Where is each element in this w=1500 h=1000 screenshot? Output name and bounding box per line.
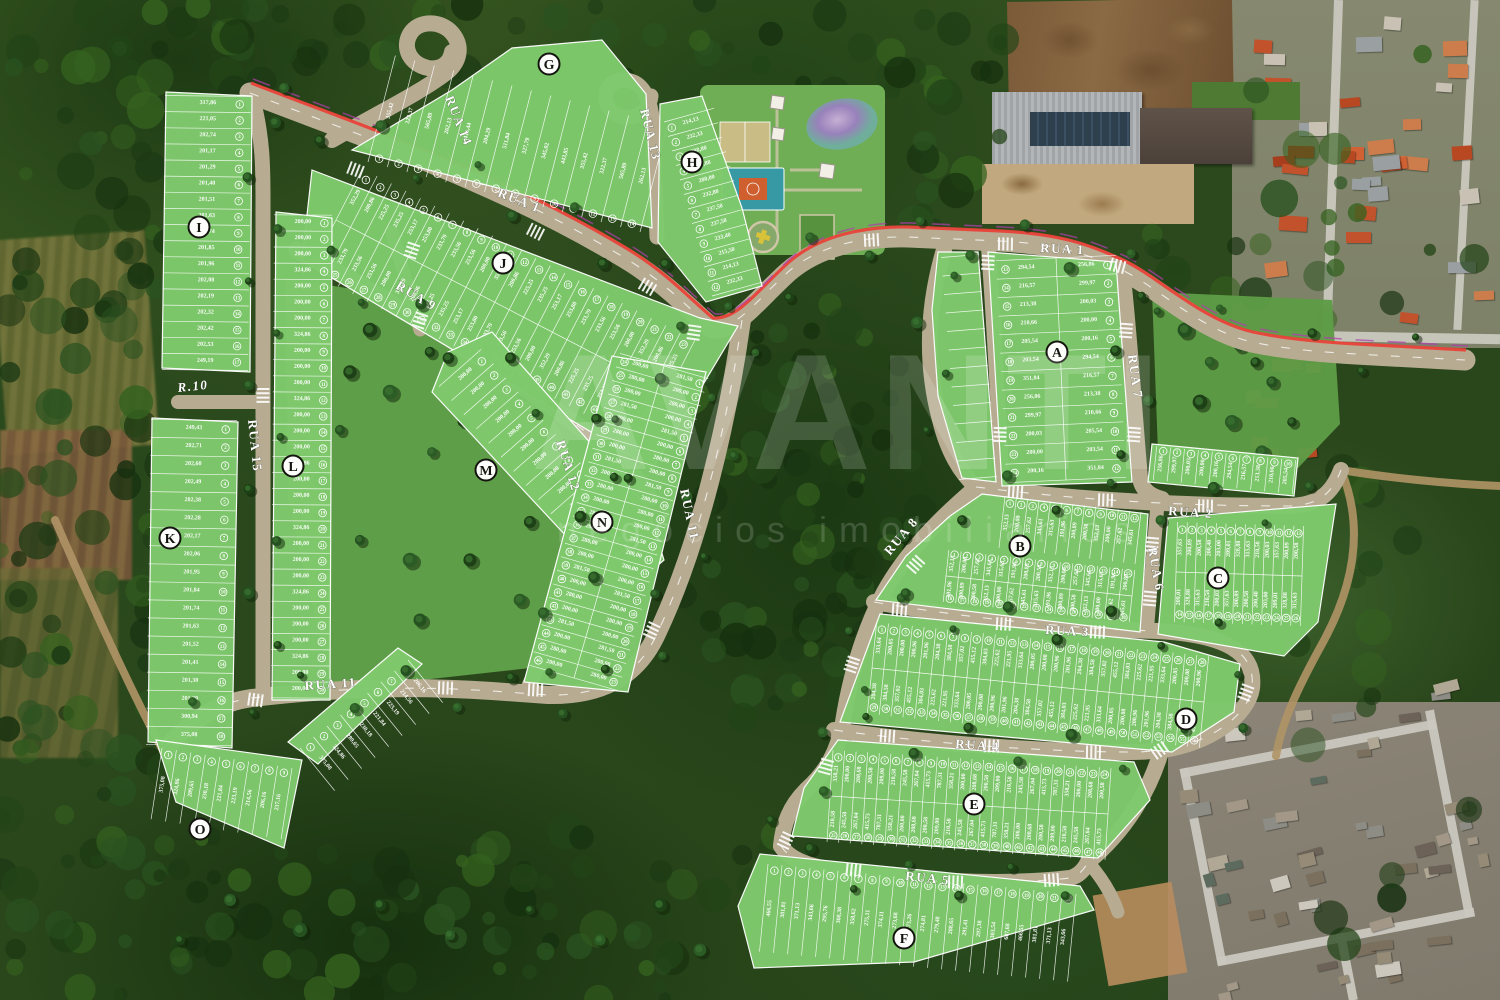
tree-canopy-blob: [1291, 727, 1326, 762]
tree-highlight: [428, 448, 433, 453]
tree-canopy-blob: [63, 695, 98, 730]
lot-number: 25: [1059, 609, 1064, 614]
tree-canopy-blob: [755, 534, 770, 549]
tree-canopy-blob: [786, 451, 821, 486]
lot-number: 14: [235, 313, 240, 318]
lot-area-label: 200,58: [1099, 782, 1106, 799]
tree-canopy-blob: [642, 23, 666, 47]
block-letter: H: [687, 156, 698, 171]
tree-highlight: [345, 367, 352, 374]
lot-area-label: 200,00: [1026, 449, 1043, 456]
tree-canopy-blob: [52, 646, 71, 665]
tree-canopy-blob: [493, 962, 506, 975]
lot-area-label: 317,86: [200, 100, 217, 106]
block-letter: L: [288, 460, 297, 475]
tree-canopy-blob: [0, 716, 20, 742]
tree-canopy-blob: [119, 385, 153, 419]
tree-highlight: [226, 896, 233, 903]
tree-canopy-blob: [13, 275, 28, 290]
lot-number: 43: [1038, 723, 1043, 728]
lot-number: 18: [1033, 769, 1038, 774]
tree-canopy-blob: [1303, 261, 1333, 291]
lot-number: 15: [642, 572, 647, 577]
tree-canopy-blob: [732, 845, 752, 865]
lot-number: 19: [1044, 770, 1049, 775]
tree-highlight: [1309, 329, 1314, 334]
tree-highlight: [559, 710, 565, 716]
tree-canopy-blob: [992, 129, 1007, 144]
tree-canopy-blob: [914, 9, 936, 31]
lot-area-label: 200,00: [294, 380, 311, 386]
tree-canopy-blob: [55, 805, 74, 824]
lot-number: 42: [1026, 722, 1031, 727]
lot-area-label: 201,95: [183, 569, 200, 575]
lot-number: 46: [536, 659, 541, 664]
lot-number: 16: [235, 345, 240, 350]
tree-canopy-blob: [494, 919, 524, 949]
tree-highlight: [943, 370, 948, 375]
lot-number: 28: [1200, 661, 1205, 666]
lot-number: 41: [1014, 721, 1019, 726]
lot-number: 15: [1126, 572, 1131, 577]
lot-area-label: 200,00: [960, 773, 967, 790]
tree-highlight: [1227, 417, 1235, 425]
lot-number: 4: [408, 201, 411, 206]
lot-number: 11: [321, 383, 326, 388]
tree-highlight: [336, 426, 342, 432]
subdivision-plan-overlay: 355,421322,372565,893262,134418,445204,2…: [0, 0, 1500, 1000]
lot-number: 22: [1011, 435, 1016, 440]
tree-highlight: [1257, 447, 1264, 454]
lot-number: 32: [912, 839, 917, 844]
lot-area-label: 200,00: [899, 815, 906, 832]
tree-highlight: [413, 175, 417, 179]
tree-canopy-blob: [100, 305, 138, 343]
tree-highlight: [1062, 892, 1067, 897]
lot-area-label: 200,00: [294, 300, 311, 306]
lot-number: 25: [1284, 617, 1289, 622]
lot-area-label: 415,73: [865, 813, 872, 830]
basketball-key: [739, 178, 767, 200]
lot-number: 21: [1010, 416, 1015, 421]
lot-area-label: 200,89: [1284, 542, 1291, 559]
lot-number: 15: [998, 767, 1003, 772]
tree-highlight: [950, 626, 954, 630]
lot-number: 12: [654, 531, 659, 536]
tree-canopy-blob: [142, 0, 168, 25]
tree-highlight: [708, 394, 712, 398]
lot-number: 15: [1005, 305, 1010, 310]
tree-canopy-blob: [9, 589, 27, 607]
lot-area-label: 607,68: [1004, 923, 1012, 940]
tree-canopy-blob: [80, 426, 111, 457]
tree-canopy-blob: [1243, 77, 1269, 103]
lot-area-label: 202,06: [184, 551, 201, 557]
lot-number: 14: [1034, 644, 1039, 649]
tree-canopy-blob: [693, 0, 716, 13]
tree-canopy-blob: [1324, 240, 1340, 256]
tree-highlight: [820, 787, 825, 792]
lot-area-label: 245,58: [902, 769, 909, 786]
lot-number: 10: [493, 246, 498, 251]
tree-canopy-blob: [1168, 263, 1183, 278]
tree-highlight: [245, 381, 251, 387]
lot-area-label: 201,30: [182, 678, 199, 684]
tree-canopy-blob: [588, 0, 604, 14]
tree-canopy-blob: [571, 855, 594, 878]
tree-highlight: [533, 410, 538, 415]
tree-canopy-blob: [451, 0, 483, 21]
lot-number: 34: [935, 841, 940, 846]
tree-highlight: [1240, 724, 1245, 729]
tree-highlight: [1127, 250, 1132, 255]
tree-canopy-blob: [689, 30, 710, 51]
lot-area-label: 267,04: [914, 770, 921, 787]
tree-highlight: [298, 672, 302, 676]
lot-number: 28: [319, 657, 324, 662]
tree-highlight: [1154, 308, 1158, 312]
tree-canopy-blob: [219, 19, 254, 54]
lot-number: 25: [320, 608, 325, 613]
tree-canopy-blob: [154, 835, 174, 855]
lot-area-label: 205,54: [1085, 428, 1102, 435]
tree-highlight: [851, 886, 855, 890]
lot-area-label: 208,68: [911, 816, 918, 833]
lot-number: 22: [615, 667, 620, 672]
tree-highlight: [1268, 378, 1274, 384]
tree-canopy-blob: [61, 854, 75, 868]
lot-number: 42: [578, 401, 583, 406]
tree-canopy-blob: [696, 878, 731, 913]
block-letter: E: [969, 798, 978, 813]
lot-number: 17: [1206, 614, 1211, 619]
lot-number: 21: [1052, 897, 1057, 902]
lot-number: 24: [1152, 656, 1157, 661]
lot-area-label: 375,08: [158, 776, 166, 793]
lot-area-label: 343,66: [1060, 928, 1068, 945]
lot-number: 18: [1081, 649, 1086, 654]
tree-canopy-blob: [872, 429, 894, 451]
tree-canopy-blob: [91, 854, 104, 867]
lot-number: 17: [635, 599, 640, 604]
tree-canopy-blob: [854, 547, 884, 577]
tree-highlight: [328, 247, 333, 252]
lot-area-label: 787,31: [937, 772, 944, 789]
lot-area-label: 267,04: [853, 812, 860, 829]
tree-highlight: [539, 609, 545, 615]
tree-canopy-blob: [136, 577, 152, 593]
lot-area-label: 201,41: [182, 660, 199, 666]
lot-number: 19: [1226, 615, 1231, 620]
tree-highlight: [611, 474, 616, 479]
tree-canopy-blob: [317, 844, 337, 864]
tree-canopy-blob: [19, 167, 32, 180]
tree-highlight: [402, 667, 408, 673]
lot-area-label: 209,00: [1050, 825, 1057, 842]
lot-area-label: 221,05: [199, 116, 216, 122]
lot-number: 16: [321, 463, 326, 468]
tree-canopy-blob: [118, 935, 132, 949]
tree-highlight: [862, 687, 866, 691]
lot-area-label: 200,00: [1076, 781, 1083, 798]
tree-highlight: [277, 434, 281, 438]
tree-canopy-blob: [6, 959, 23, 976]
tree-canopy-blob: [797, 483, 820, 506]
lot-number: 15: [321, 447, 326, 452]
lot-area-label: 200,00: [293, 557, 310, 563]
tree-canopy-blob: [1348, 203, 1367, 222]
lot-area-label: 328,88: [1185, 589, 1192, 606]
lot-number: 14: [1177, 613, 1182, 618]
lot-number: 31: [595, 456, 600, 461]
tree-highlight: [924, 427, 928, 431]
lot-number: 40: [549, 386, 554, 391]
lot-number: 25: [831, 834, 836, 839]
tree-canopy-blob: [207, 870, 221, 884]
tree-highlight: [677, 323, 682, 328]
lot-area-label: 357,63: [1177, 539, 1184, 556]
lot-area-label: 202,28: [184, 515, 201, 521]
tree-highlight: [916, 218, 921, 223]
tree-highlight: [1053, 507, 1058, 512]
tree-canopy-blob: [1460, 244, 1489, 273]
tree-canopy-blob: [1379, 862, 1405, 888]
lot-number: 25: [1164, 658, 1169, 663]
lot-number: 25: [333, 274, 338, 279]
lot-number: 10: [705, 257, 710, 262]
tree-highlight: [377, 122, 383, 128]
block-A: 256,86294,54113299,97216,57214200,03213,…: [988, 252, 1132, 486]
tree-canopy-blob: [11, 551, 27, 567]
tree-canopy-blob: [898, 449, 922, 473]
tree-canopy-blob: [831, 551, 852, 572]
lot-number: 19: [623, 313, 628, 318]
lot-number: 10: [898, 882, 903, 887]
lot-number: 10: [1064, 565, 1069, 570]
masterplan-aerial-map: 355,421322,372565,893262,134418,445204,2…: [0, 0, 1500, 1000]
lot-number: 16: [639, 586, 644, 591]
lot-area-label: 200,00: [294, 283, 311, 289]
lot-number: 13: [650, 545, 655, 550]
lot-area-label: 299,97: [1025, 412, 1042, 419]
lot-area-label: 357,63: [1224, 590, 1231, 607]
tree-highlight: [785, 294, 790, 299]
tree-highlight: [965, 724, 971, 730]
lot-number: 14: [1113, 571, 1118, 576]
lot-number: 33: [587, 483, 592, 488]
lot-area-label: 216,57: [1083, 373, 1100, 380]
lot-number: 13: [1296, 532, 1301, 537]
tree-canopy-blob: [114, 241, 133, 260]
lot-number: 19: [627, 626, 632, 631]
tree-canopy-blob: [125, 879, 146, 900]
lot-number: 10: [552, 202, 557, 207]
tree-canopy-blob: [278, 862, 312, 896]
tree-highlight: [1306, 483, 1311, 488]
tree-canopy-blob: [654, 979, 668, 993]
block-marker-I: I: [189, 217, 210, 238]
lot-area-label: 200,00: [295, 235, 312, 241]
tree-canopy-blob: [34, 59, 48, 73]
tree-highlight: [656, 375, 662, 381]
lot-number: 21: [1068, 771, 1073, 776]
tree-canopy-blob: [543, 4, 569, 30]
lot-area-label: 202,32: [197, 310, 214, 316]
tree-highlight: [1358, 368, 1363, 373]
tree-canopy-blob: [109, 468, 141, 500]
lot-number: 44: [1051, 848, 1056, 853]
tree-highlight: [273, 537, 278, 542]
lot-number: 24: [1274, 616, 1279, 621]
lot-area-label: 209,01: [1273, 592, 1280, 609]
street-label-rua4: RUA 4: [955, 736, 1001, 754]
tree-canopy-blob: [343, 41, 370, 68]
tree-canopy-blob: [40, 460, 77, 497]
lot-number: 30: [599, 442, 604, 447]
tree-canopy-blob: [135, 152, 166, 183]
block-letter: O: [195, 823, 206, 838]
lot-number: 48: [1097, 729, 1102, 734]
crosswalk: [529, 228, 543, 235]
lot-number: 23: [681, 343, 686, 348]
lot-number: 27: [610, 401, 615, 406]
lot-area-label: 249,43: [186, 425, 203, 431]
tree-highlight: [730, 452, 735, 457]
lot-number: 12: [235, 280, 240, 285]
tree-canopy-blob: [508, 17, 526, 35]
block-marker-J: J: [493, 253, 514, 274]
lot-area-label: 210,58: [1255, 541, 1262, 558]
tree-canopy-blob: [653, 939, 684, 970]
tree-highlight: [1003, 472, 1009, 478]
lot-number: 16: [982, 890, 987, 895]
lot-area-label: 200,00: [293, 573, 310, 579]
lot-number: 18: [609, 306, 614, 311]
tree-canopy-blob: [61, 50, 96, 85]
lot-number: 14: [1004, 287, 1009, 292]
block-letter: A: [1052, 346, 1063, 361]
block-C: 357,63209,01114200,89328,88215200,58315,…: [1158, 504, 1336, 656]
tree-highlight: [1120, 765, 1124, 769]
lot-area-label: 200,00: [294, 316, 311, 322]
lot-number: 15: [219, 681, 224, 686]
lot-number: 23: [1034, 607, 1039, 612]
tree-highlight: [651, 590, 656, 595]
tree-canopy-blob: [659, 992, 671, 1000]
lot-area-label: 200,03: [1215, 590, 1222, 607]
lot-area-label: 200,00: [1080, 317, 1097, 324]
tree-highlight: [1252, 359, 1258, 365]
block-L: 200,001200,002200,003324,864200,005200,0…: [271, 212, 332, 700]
lot-number: 11: [236, 264, 241, 269]
lot-area-label: 202,42: [197, 326, 214, 332]
tree-canopy-blob: [0, 362, 20, 383]
tree-canopy-blob: [847, 33, 876, 62]
tree-highlight: [1206, 358, 1212, 364]
lot-area-label: 324,86: [292, 589, 309, 595]
lot-area-label: 200,03: [1025, 431, 1042, 438]
tree-highlight: [1112, 347, 1118, 353]
tree-canopy-blob: [937, 12, 971, 46]
tree-canopy-blob: [537, 943, 555, 961]
lot-number: 13: [610, 217, 615, 222]
lot-number: 12: [522, 261, 527, 266]
lot-area-label: 208,68: [1027, 824, 1034, 841]
lot-area-label: 209,00: [879, 768, 886, 785]
lot-area-label: 200,58: [1244, 591, 1251, 608]
lot-number: 39: [990, 718, 995, 723]
lot-area-label: 213,38: [1084, 391, 1101, 398]
lot-area-label: 324,86: [292, 654, 309, 660]
lot-area-label: 201,40: [199, 181, 216, 187]
tree-highlight: [465, 555, 472, 562]
tree-highlight: [625, 475, 630, 480]
lot-number: 29: [872, 706, 877, 711]
tree-canopy-blob: [75, 510, 110, 545]
lot-number: 32: [907, 710, 912, 715]
tree-highlight: [1107, 607, 1113, 613]
tree-highlight: [271, 118, 277, 124]
lot-number: 10: [321, 367, 326, 372]
block-marker-F: F: [894, 928, 915, 949]
block-marker-O: O: [190, 819, 211, 840]
tree-highlight: [526, 906, 531, 911]
lot-number: 47: [1085, 728, 1090, 733]
tree-canopy-blob: [151, 41, 168, 58]
gazebo: [770, 95, 785, 110]
tree-highlight: [280, 84, 286, 90]
lot-area-label: 209,00: [995, 775, 1002, 792]
tree-canopy-blob: [387, 963, 417, 993]
lot-number: 13: [1101, 569, 1106, 574]
tree-canopy-blob: [759, 22, 783, 46]
lot-number: 17: [996, 891, 1001, 896]
lot-number: 25: [618, 374, 623, 379]
tree-canopy-blob: [127, 262, 154, 289]
lot-number: 42: [1028, 847, 1033, 852]
lot-area-label: 324,86: [294, 332, 311, 338]
lot-number: 13: [220, 645, 225, 650]
tree-highlight: [405, 555, 413, 563]
lot-number: 14: [321, 431, 326, 436]
lot-number: 18: [320, 496, 325, 501]
lot-number: 1: [365, 179, 368, 184]
tree-highlight: [1195, 397, 1203, 405]
lot-area-label: 294,54: [1082, 354, 1099, 361]
lot-number: 30: [1121, 616, 1126, 621]
tree-canopy-blob: [747, 454, 777, 484]
lot-area-label: 358,21: [888, 815, 895, 832]
block-letter: J: [500, 257, 507, 272]
tree-highlight: [1067, 731, 1074, 738]
tree-canopy-blob: [971, 61, 992, 82]
street-label-rua3: RUA 3: [1045, 622, 1090, 639]
lot-area-label: 202,71: [185, 443, 202, 449]
tree-canopy-blob: [228, 868, 252, 892]
tree-canopy-blob: [482, 912, 495, 925]
lot-number: 37: [970, 843, 975, 848]
lot-number: 33: [919, 711, 924, 716]
tree-highlight: [426, 348, 432, 354]
lot-area-label: 415,73: [1096, 828, 1103, 845]
lot-number: 35: [947, 842, 952, 847]
tree-canopy-blob: [14, 739, 39, 764]
block-marker-K: K: [160, 528, 181, 549]
tree-canopy-blob: [650, 860, 673, 883]
tree-canopy-blob: [825, 592, 847, 614]
tree-canopy-blob: [1456, 797, 1482, 823]
tree-highlight: [365, 325, 373, 333]
